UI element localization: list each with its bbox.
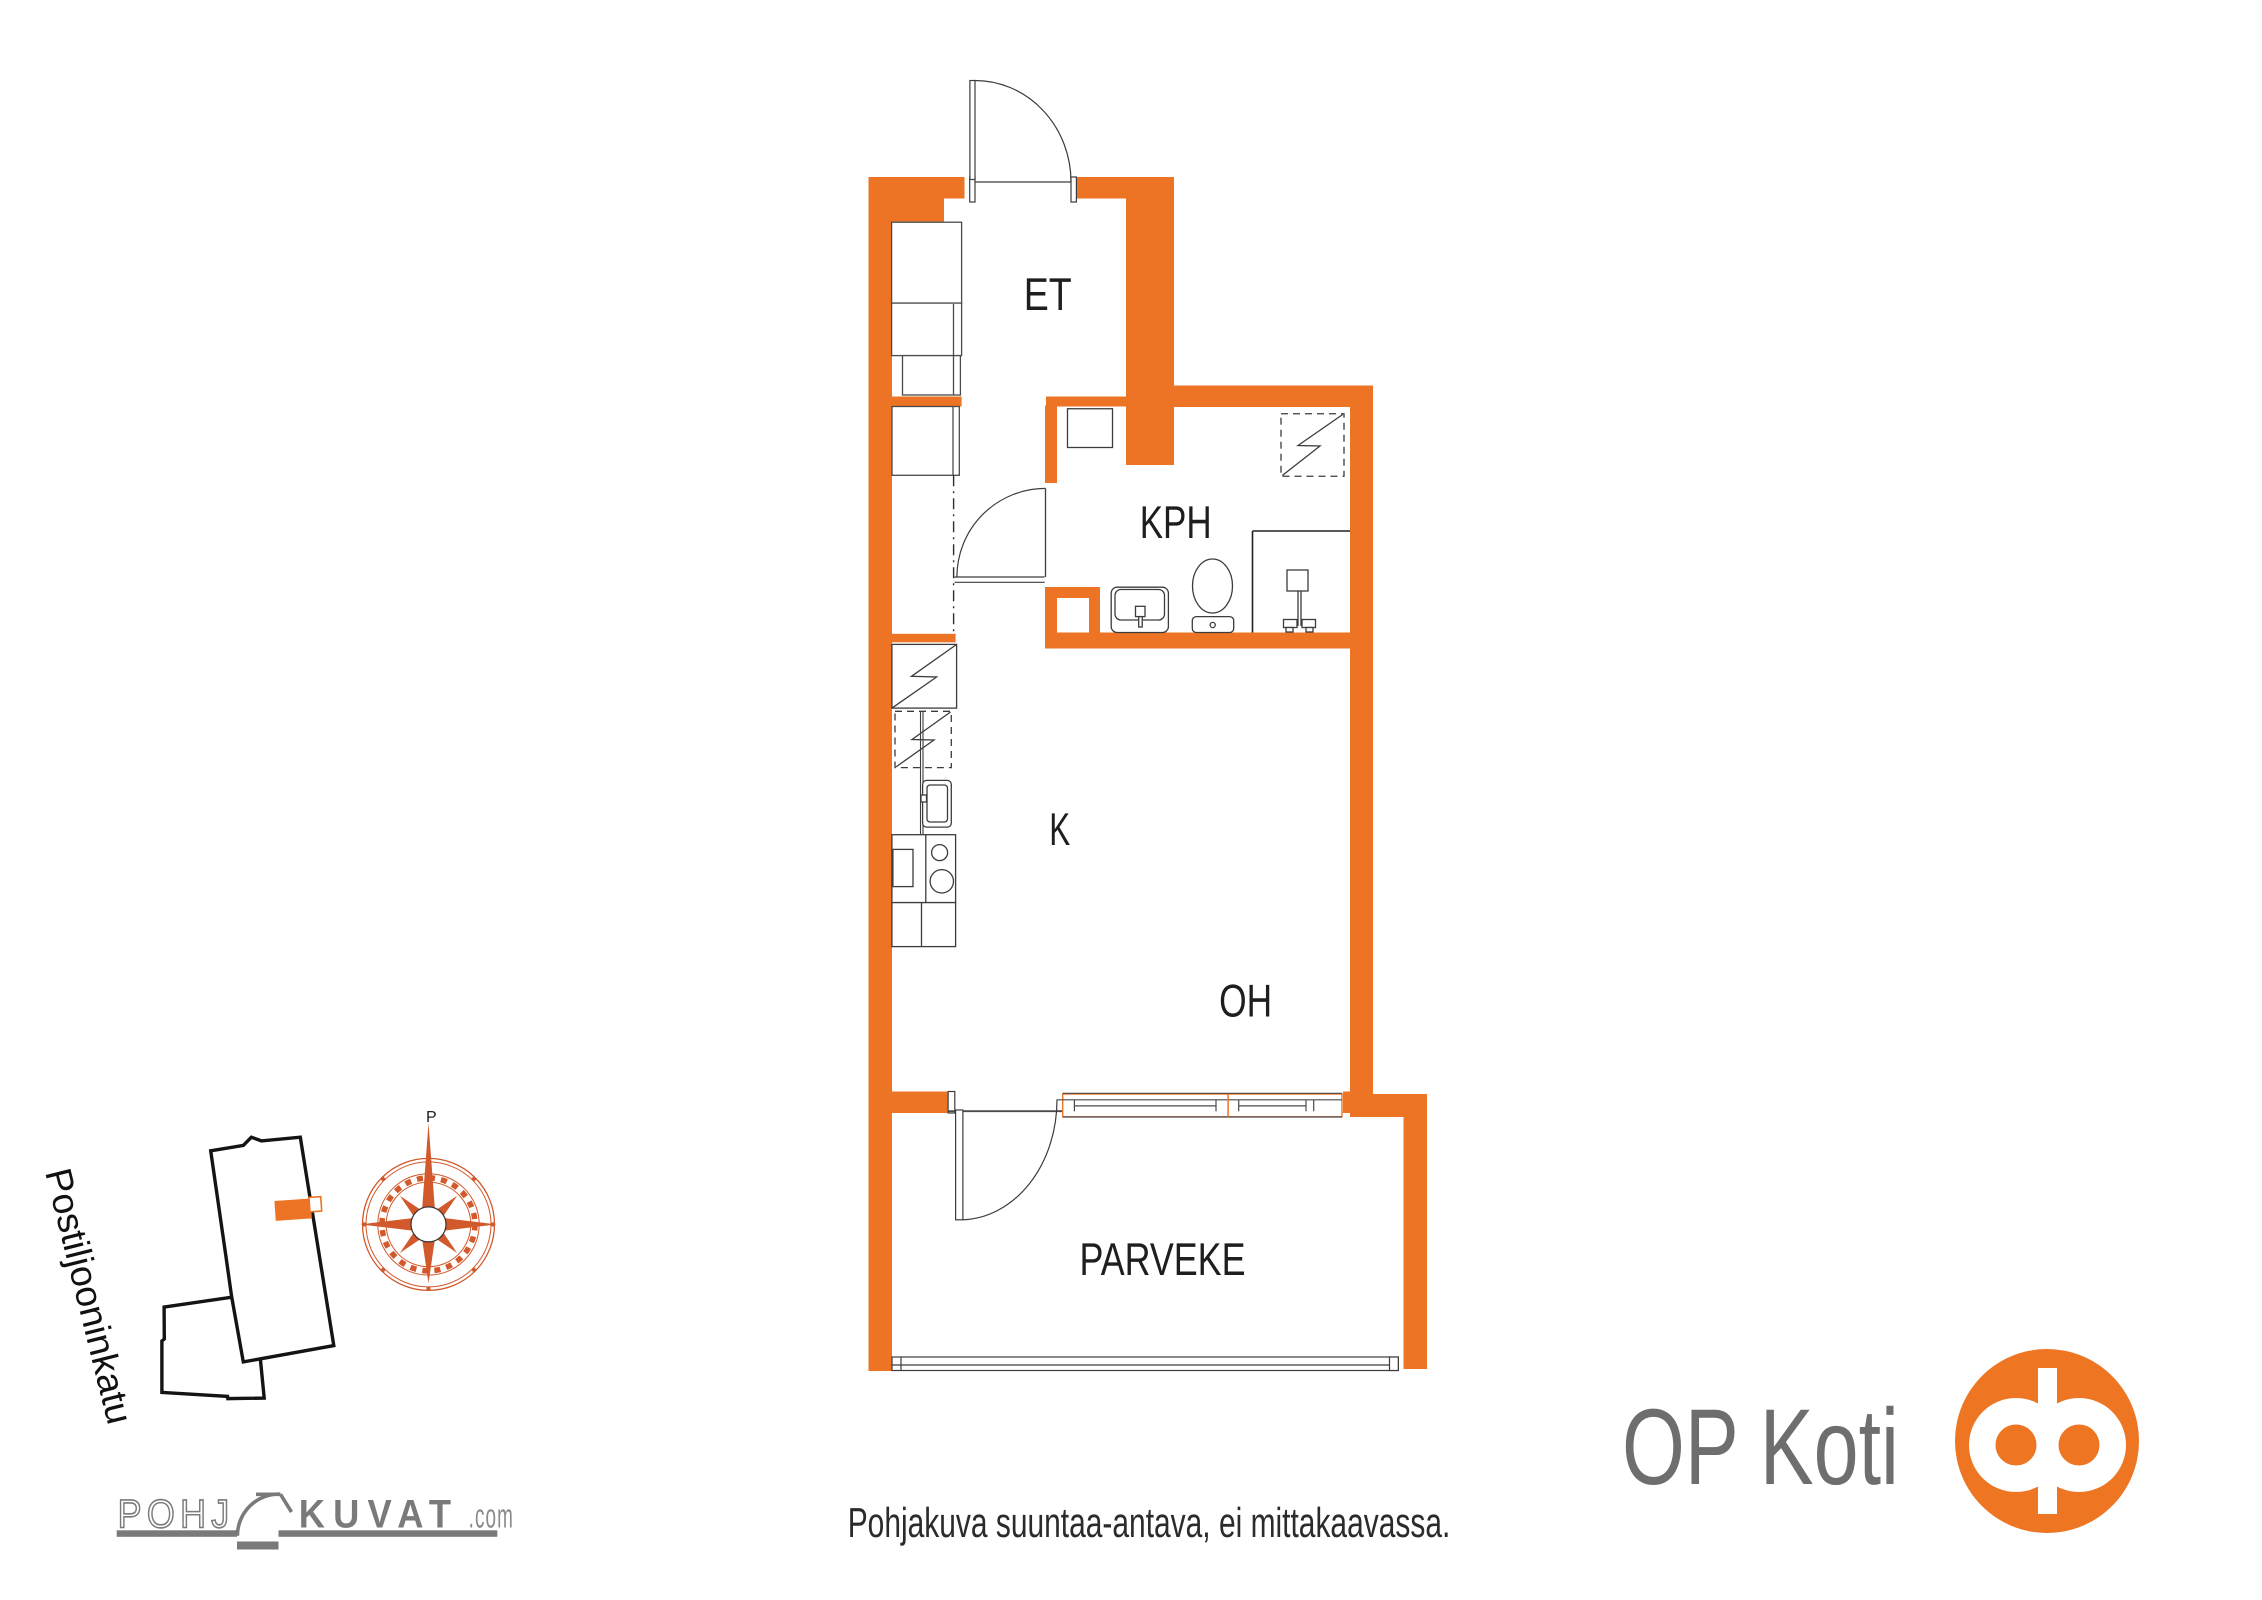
svg-text:KUVAT: KUVAT [299,1493,460,1537]
svg-text:OP Koti: OP Koti [1622,1386,1899,1507]
svg-text:POHJ: POHJ [118,1493,235,1537]
svg-text:K: K [1049,803,1070,855]
svg-text:KPH: KPH [1140,496,1212,548]
svg-text:Pohjakuva suuntaa-antava, ei m: Pohjakuva suuntaa-antava, ei mittakaavas… [848,1499,1451,1546]
svg-text:PARVEKE: PARVEKE [1080,1233,1246,1285]
svg-text:.com: .com [469,1498,514,1536]
svg-text:P: P [426,1109,437,1126]
svg-text:ET: ET [1024,268,1072,320]
svg-text:OH: OH [1219,974,1272,1026]
